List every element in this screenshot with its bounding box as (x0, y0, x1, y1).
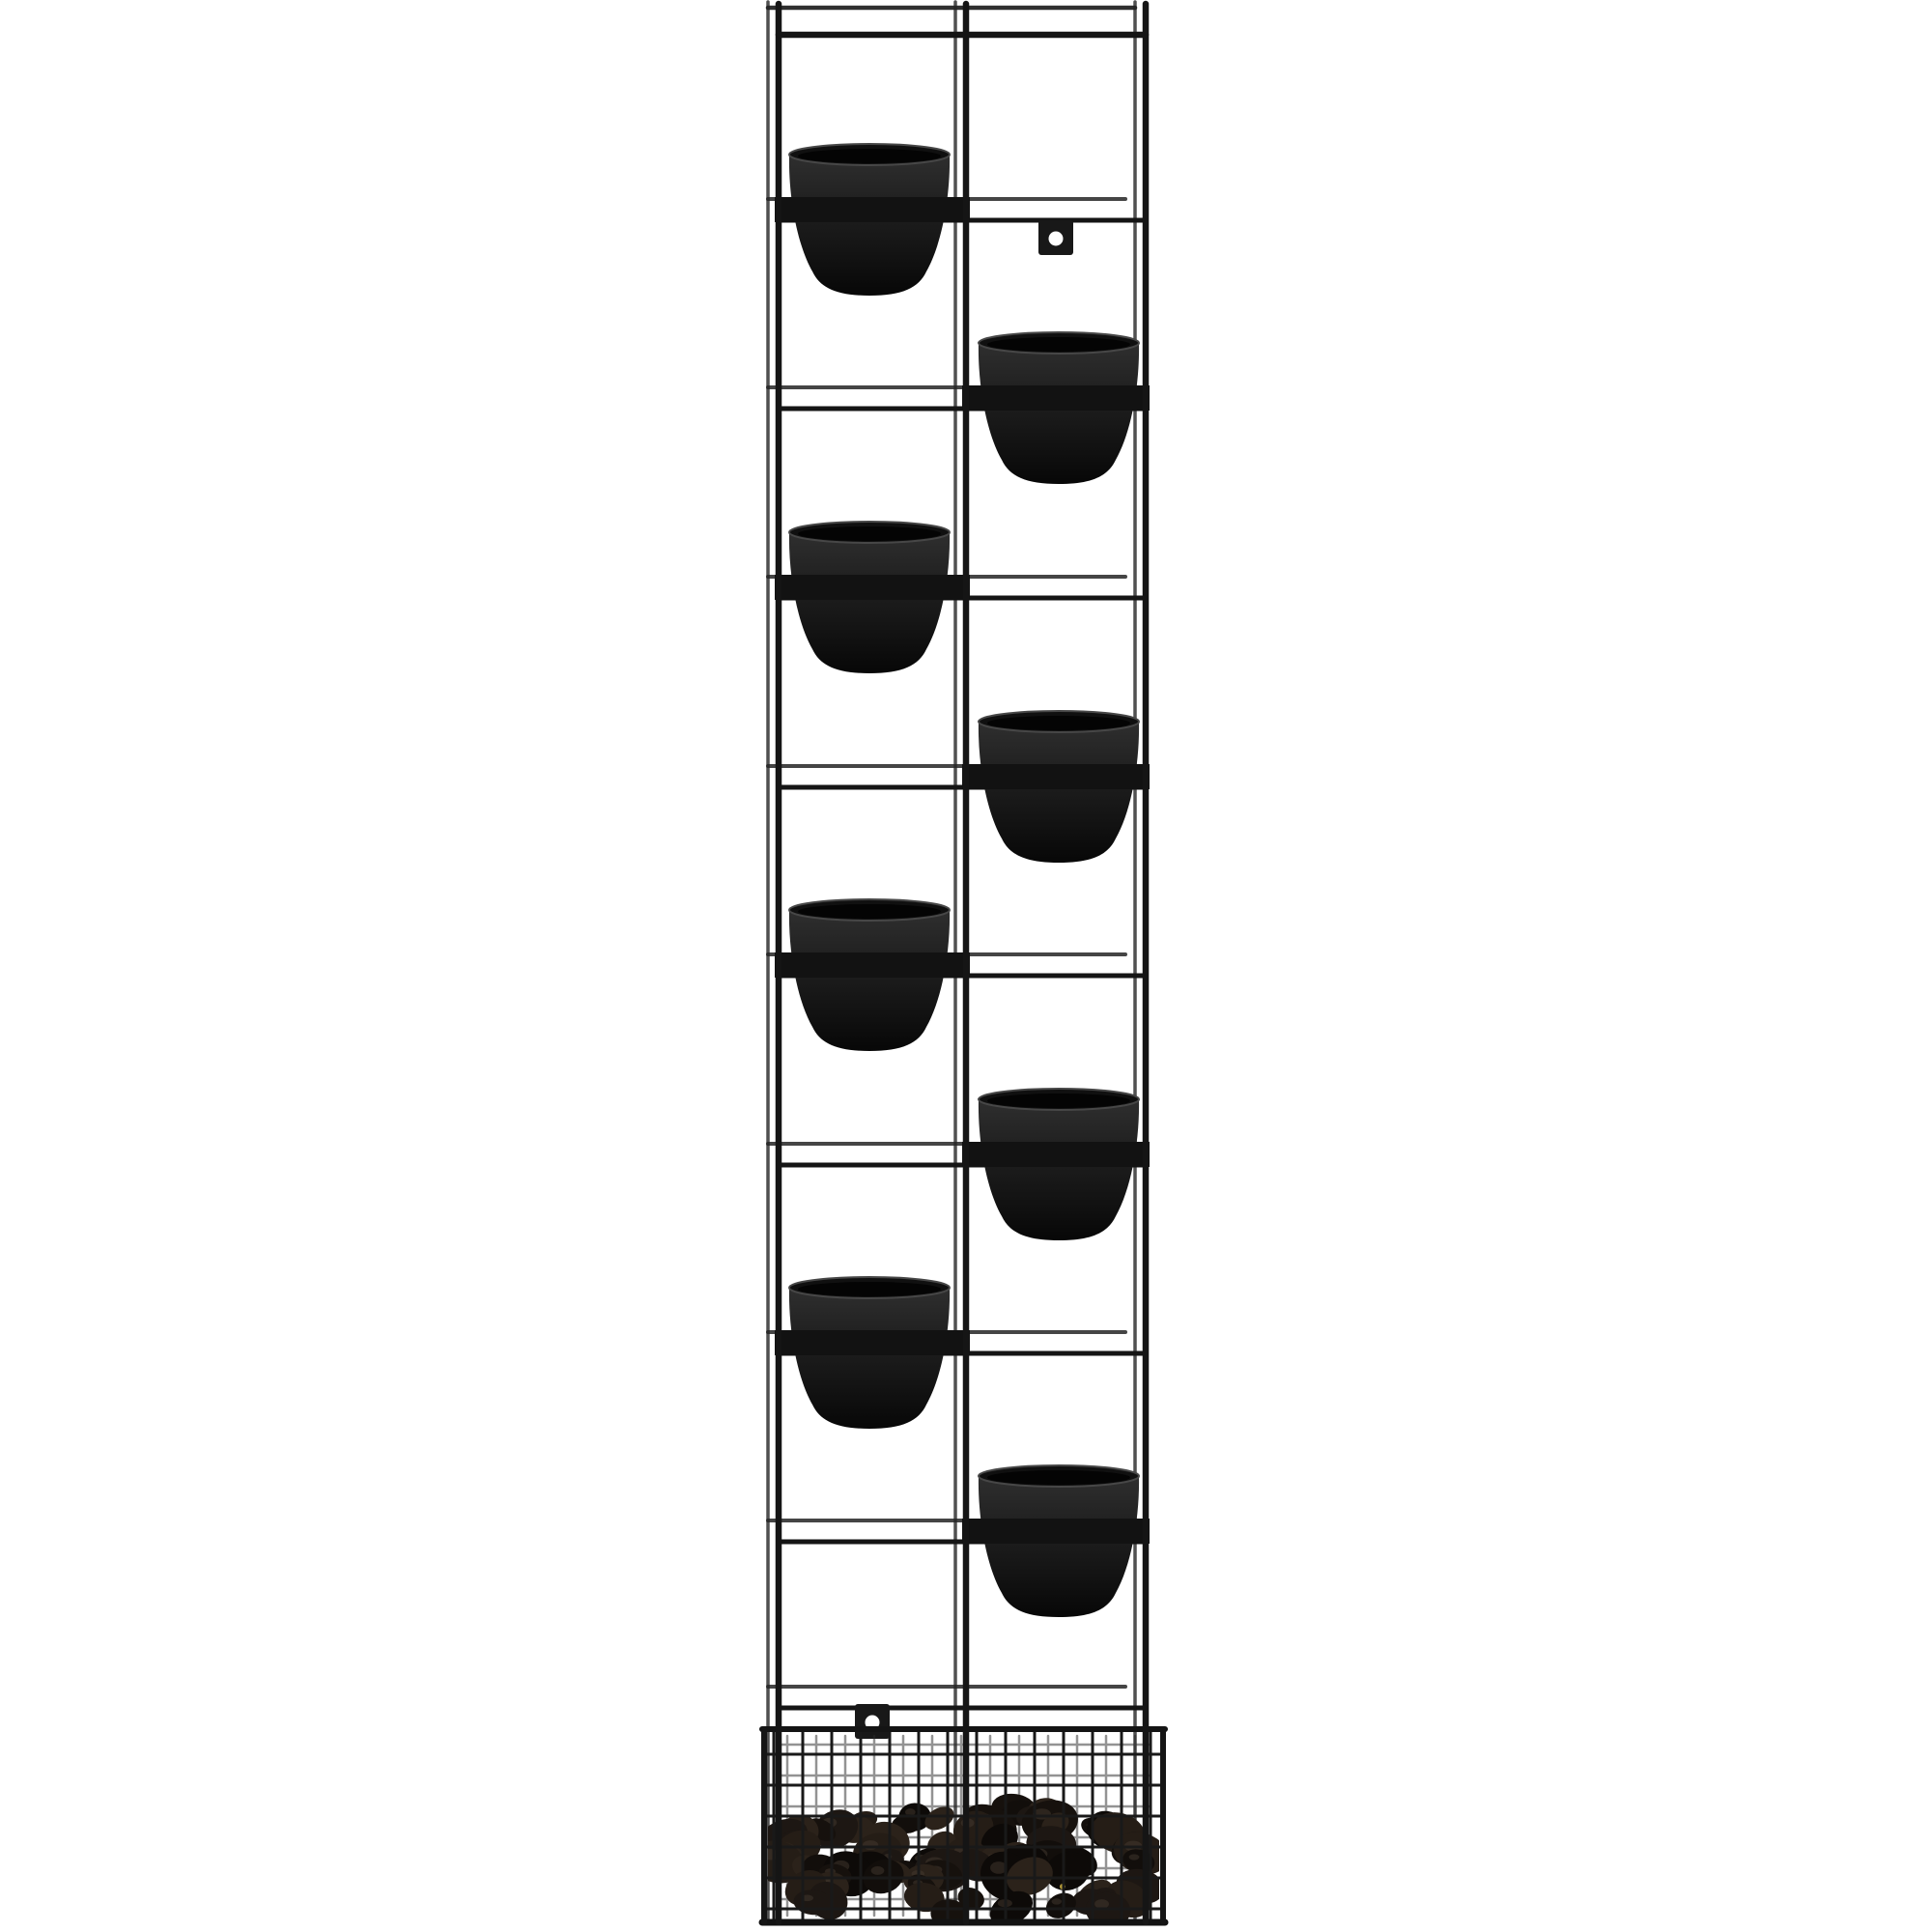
pot-ring-shelf-8 (962, 1519, 1150, 1544)
pot-interior (798, 526, 941, 541)
pot-ring-shelf-2 (962, 385, 1150, 411)
pot-interior (987, 716, 1130, 730)
wire-basket (747, 1729, 1174, 1932)
pot-interior (987, 1470, 1130, 1485)
mounting-tab-1 (1038, 220, 1073, 255)
screw-hole (1049, 232, 1064, 246)
pebble-highlight (1052, 1898, 1062, 1904)
shelf-bands (775, 197, 1150, 1544)
planter-rack-illustration (0, 0, 1932, 1932)
pebble-highlight (1094, 1899, 1109, 1909)
product-photo: Product photo: black metal wall-mounted … (0, 0, 1932, 1932)
pebble-highlight (1129, 1854, 1140, 1860)
pot-interior (798, 904, 941, 919)
pot-ring-shelf-7 (775, 1330, 970, 1355)
pot-interior (798, 1282, 941, 1296)
pot-ring-shelf-3 (775, 575, 970, 600)
pot-interior (987, 1094, 1130, 1108)
pot-ring-shelf-6 (962, 1142, 1150, 1167)
pot-interior (798, 149, 941, 163)
pebble-highlight (871, 1866, 885, 1875)
pot-interior (987, 337, 1130, 352)
pot-ring-shelf-5 (775, 952, 970, 978)
pot-ring-shelf-1 (775, 197, 970, 222)
pot-ring-shelf-4 (962, 764, 1150, 789)
photo-stage (0, 0, 1932, 1932)
